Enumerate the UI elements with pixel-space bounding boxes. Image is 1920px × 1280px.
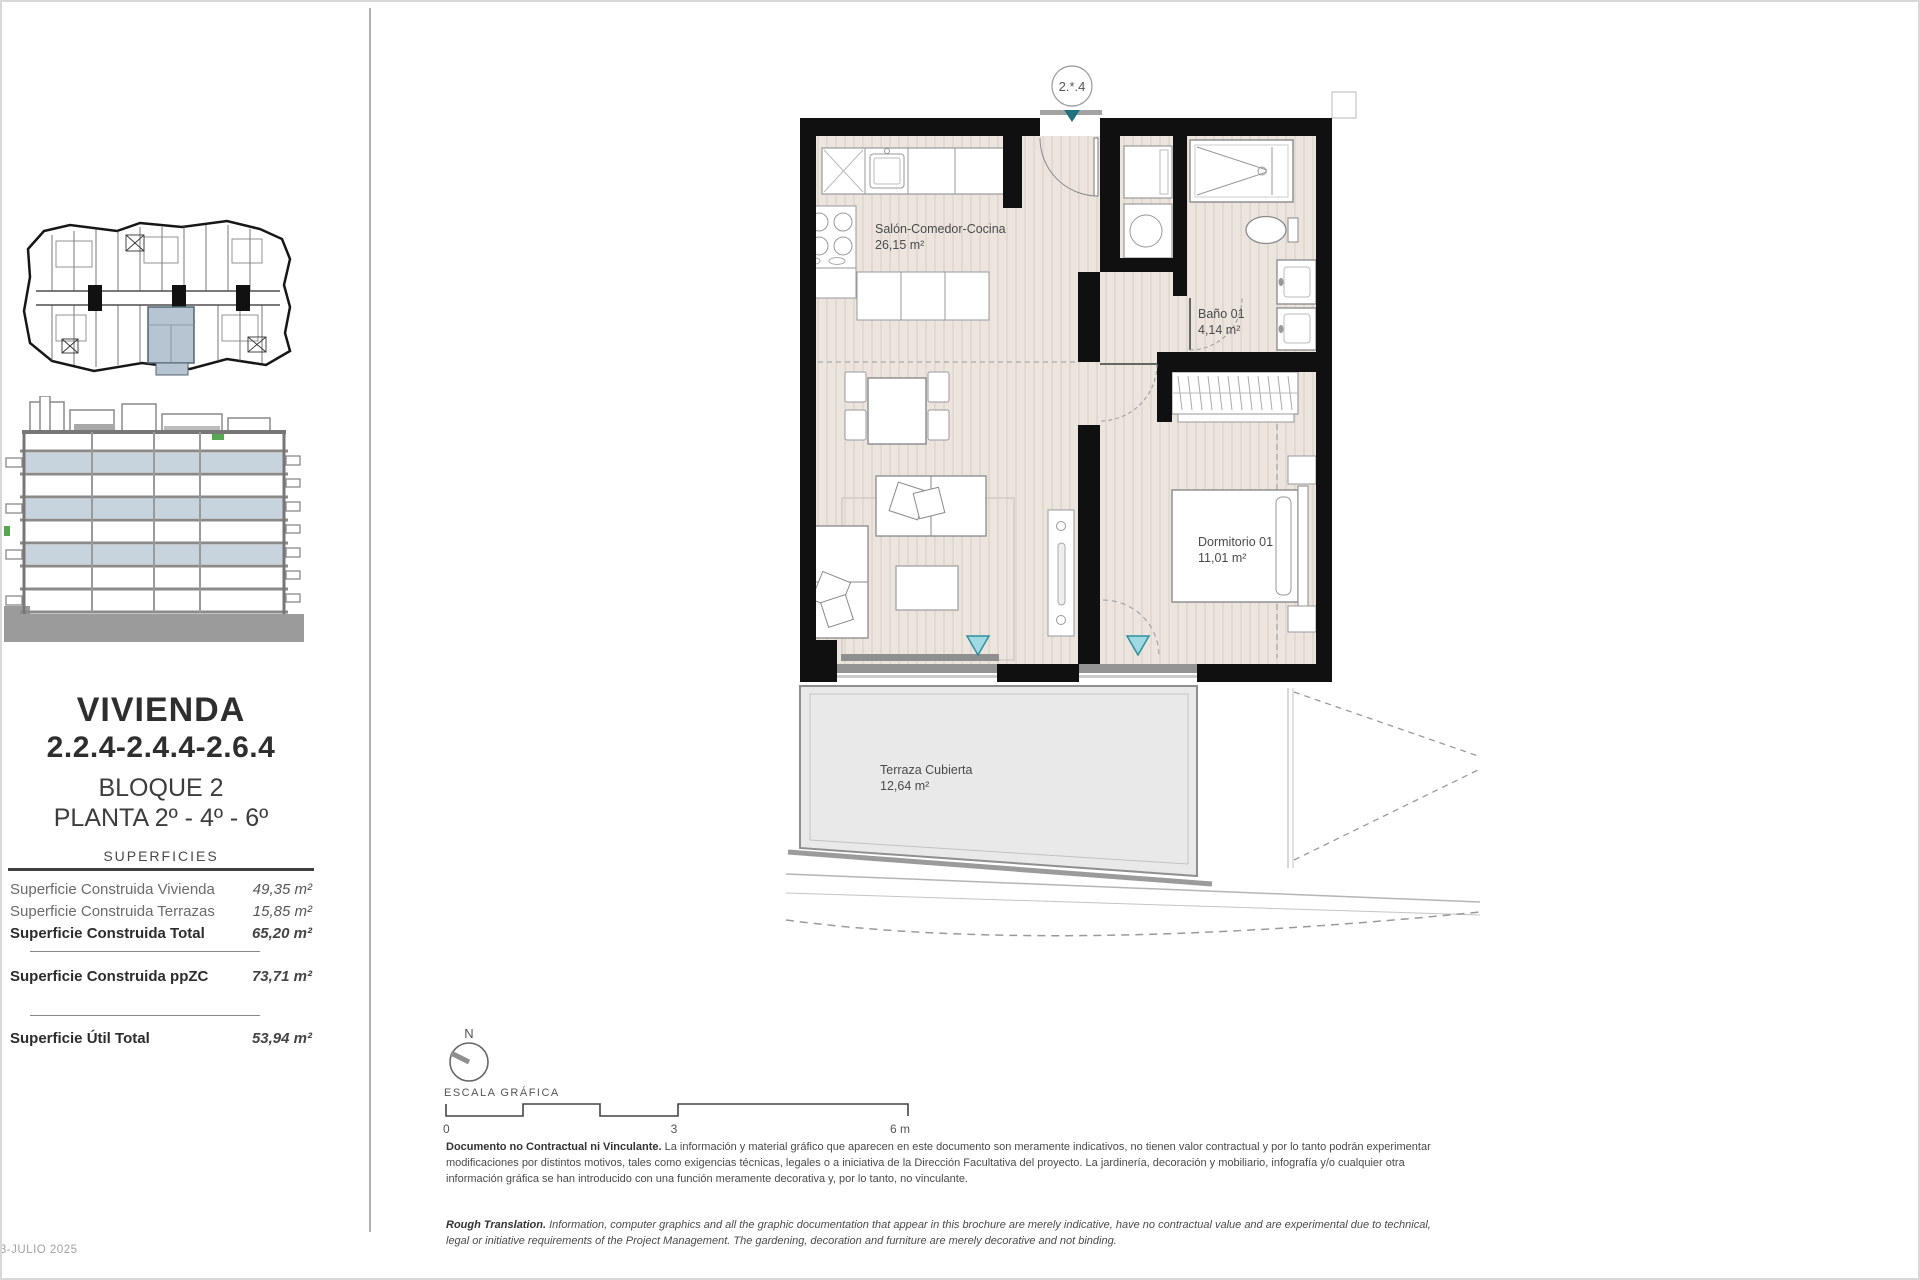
- room-area-terraza: 12,64 m²: [880, 779, 929, 793]
- row-value: 49,35 m²: [253, 881, 312, 898]
- row-value: 15,85 m²: [253, 903, 312, 920]
- entry-door-leaf: [1094, 138, 1098, 196]
- table-row: Superficie Construida Terrazas 15,85 m²: [10, 903, 312, 920]
- table-row: Superficie Construida Total 65,20 m²: [10, 925, 312, 942]
- scale-tick-3: 3: [671, 1122, 678, 1136]
- room-area-dormitorio: 11,01 m²: [1198, 551, 1246, 565]
- nightstand: [1288, 456, 1316, 484]
- disclaimer-english-body: Information, computer graphics and all t…: [446, 1219, 1431, 1247]
- sidebar-divider-line: [369, 8, 371, 1232]
- green-accent-roof: [212, 434, 224, 440]
- disclaimer-spanish: Documento no Contractual ni Vinculante. …: [446, 1140, 1438, 1188]
- scale-tick-6: 6 m: [890, 1122, 910, 1136]
- row-value: 65,20 m²: [252, 925, 312, 942]
- north-arrow: N: [450, 1026, 488, 1081]
- room-area-salon: 26,15 m²: [875, 238, 924, 252]
- page-title: VIVIENDA: [0, 692, 322, 729]
- kitchen-island: [857, 272, 989, 320]
- dryer: [1124, 146, 1172, 198]
- sliding-panel: [1048, 510, 1074, 636]
- scale-tick-0: 0: [443, 1122, 450, 1136]
- disclaimer-spanish-lead: Documento no Contractual ni Vinculante.: [446, 1141, 662, 1153]
- terrace: [788, 686, 1212, 884]
- row-value: 73,71 m²: [252, 968, 312, 985]
- sink-icon: [870, 154, 904, 188]
- unit-badge-label: 2.*.4: [1059, 79, 1086, 94]
- disclaimer-english-lead: Rough Translation.: [446, 1219, 546, 1231]
- room-label-dormitorio: Dormitorio 01: [1198, 535, 1273, 549]
- building-footprint: [24, 221, 290, 375]
- row-value: 53,94 m²: [252, 1030, 312, 1047]
- row-label: Superficie Útil Total: [10, 1030, 150, 1047]
- elevation-drawing: [4, 396, 304, 642]
- row-label: Superficie Construida Terrazas: [10, 903, 215, 920]
- toilet: [1246, 217, 1286, 244]
- floors-label: PLANTA 2º - 4º - 6º: [0, 803, 322, 833]
- superficies-header: SUPERFICIES: [0, 848, 322, 864]
- room-area-bano: 4,14 m²: [1198, 323, 1240, 337]
- table-row: Superficie Construida ppZC 73,71 m²: [10, 968, 312, 985]
- table-row: Superficie Construida Vivienda 49,35 m²: [10, 881, 312, 898]
- north-label: N: [464, 1026, 473, 1041]
- document-date: 03-JULIO 2025: [0, 1244, 78, 1256]
- pillow: [1276, 497, 1291, 595]
- key-plan-locator: [22, 215, 297, 383]
- room-label-salon: Salón-Comedor-Cocina: [875, 222, 1006, 236]
- row-label: Superficie Construida Vivienda: [10, 881, 215, 898]
- nightstand: [1288, 606, 1316, 632]
- sliding-door-track: [841, 654, 999, 661]
- building-elevation: [4, 396, 304, 646]
- table-separator: [30, 951, 260, 952]
- scale-bar: 0 3 6 m: [443, 1104, 910, 1136]
- unit-numbers: 2.2.4-2.4.4-2.6.4: [0, 729, 322, 767]
- scale-label: ESCALA GRÁFICA: [444, 1086, 560, 1099]
- headboard: [1298, 486, 1308, 606]
- coffee-table: [896, 566, 958, 610]
- entry-marker-icon: [1064, 110, 1080, 122]
- green-accent-left: [4, 526, 10, 536]
- title-block: VIVIENDA 2.2.4-2.4.4-2.6.4 BLOQUE 2 PLAN…: [0, 692, 322, 833]
- table-header-rule: [8, 868, 314, 871]
- washing-machine: [1124, 204, 1172, 258]
- row-label: Superficie Construida ppZC: [10, 968, 208, 985]
- table-row: Superficie Útil Total 53,94 m²: [10, 1030, 312, 1047]
- row-label: Superficie Construida Total: [10, 925, 205, 942]
- room-label-bano: Baño 01: [1198, 307, 1245, 321]
- block-label: BLOQUE 2: [0, 773, 322, 803]
- disclaimer-english: Rough Translation. Information, computer…: [446, 1218, 1438, 1250]
- table-separator: [30, 1015, 260, 1016]
- map-legend: N ESCALA GRÁFICA 0 3 6 m: [438, 1020, 924, 1140]
- floor-plan: 2.*.4 Salón-Comedor-Cocina 26,15 m² Baño…: [770, 40, 1500, 980]
- room-label-terraza: Terraza Cubierta: [880, 763, 972, 777]
